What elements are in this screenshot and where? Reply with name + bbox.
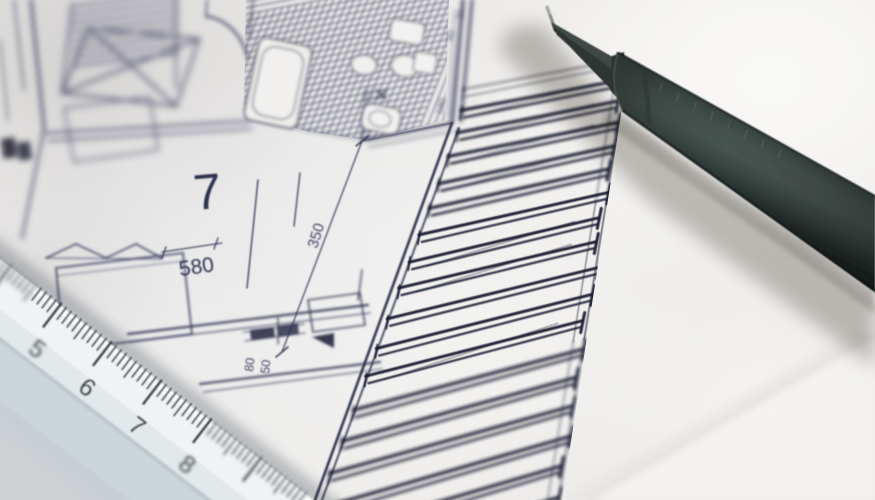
svg-text:580: 580 [177,253,215,281]
svg-text:7: 7 [191,163,224,221]
svg-text:80: 80 [242,357,257,372]
svg-text:50: 50 [258,359,273,374]
